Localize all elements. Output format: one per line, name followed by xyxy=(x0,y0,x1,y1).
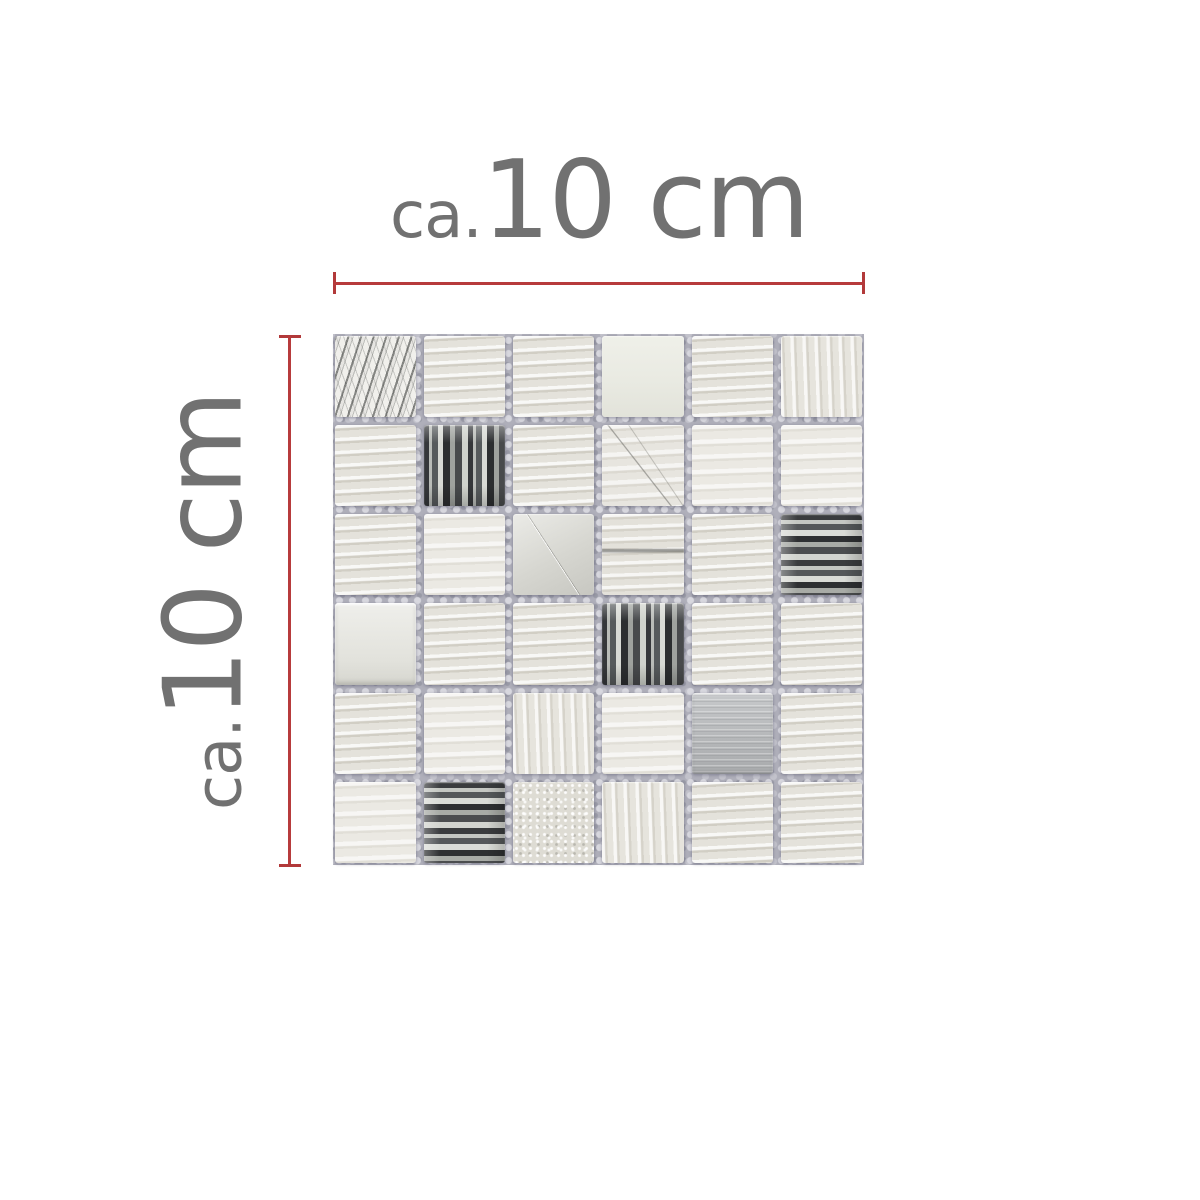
mosaic-tile xyxy=(424,425,505,506)
left-dimension-prefix: ca. xyxy=(183,718,257,810)
product-dimension-image: ca. 10 cm ca. 10 cm xyxy=(0,0,1200,1200)
mosaic-tile xyxy=(692,693,773,774)
mosaic-tile xyxy=(513,693,594,774)
mosaic-tile xyxy=(424,693,505,774)
mosaic-tile xyxy=(781,603,862,684)
measure-end-tick-bottom xyxy=(279,864,301,867)
mosaic-tile xyxy=(335,425,416,506)
mosaic-tile xyxy=(781,782,862,863)
mosaic-tile xyxy=(781,336,862,417)
mosaic-tile xyxy=(424,336,505,417)
mosaic-tile xyxy=(513,603,594,684)
top-dimension-label: ca. 10 cm xyxy=(333,138,865,250)
horizontal-measure-line xyxy=(333,272,865,294)
mosaic-tile xyxy=(424,782,505,863)
left-dimension-value: 10 cm xyxy=(142,392,267,718)
mosaic-tile xyxy=(335,693,416,774)
mosaic-tile xyxy=(692,782,773,863)
mosaic-tile xyxy=(513,514,594,595)
mosaic-tile xyxy=(602,425,683,506)
mosaic-tile xyxy=(335,782,416,863)
top-dimension-value: 10 cm xyxy=(482,138,808,263)
mosaic-tile xyxy=(513,782,594,863)
mosaic-tile xyxy=(692,603,773,684)
left-dimension-label: ca. 10 cm xyxy=(142,392,267,810)
mosaic-tile xyxy=(602,693,683,774)
measure-end-tick-right xyxy=(862,272,865,294)
mosaic-tile xyxy=(602,336,683,417)
top-dimension-prefix: ca. xyxy=(390,179,482,253)
mosaic-tile xyxy=(513,336,594,417)
mosaic-tile xyxy=(781,514,862,595)
measure-line xyxy=(288,336,291,866)
mosaic-tile xyxy=(513,425,594,506)
mosaic-tile xyxy=(692,514,773,595)
mosaic-tile xyxy=(602,603,683,684)
mosaic-tile xyxy=(781,425,862,506)
mosaic-tile xyxy=(424,514,505,595)
mosaic-tile xyxy=(424,603,505,684)
mosaic-tile xyxy=(602,514,683,595)
mosaic-photo xyxy=(333,334,864,865)
mosaic-tile xyxy=(335,514,416,595)
measure-line xyxy=(334,282,864,285)
mosaic-tile xyxy=(692,425,773,506)
vertical-measure-line xyxy=(279,335,301,867)
mosaic-tile xyxy=(692,336,773,417)
mosaic-tile xyxy=(335,336,416,417)
mosaic-tile xyxy=(335,603,416,684)
mosaic-tile xyxy=(602,782,683,863)
mosaic-tile xyxy=(781,693,862,774)
